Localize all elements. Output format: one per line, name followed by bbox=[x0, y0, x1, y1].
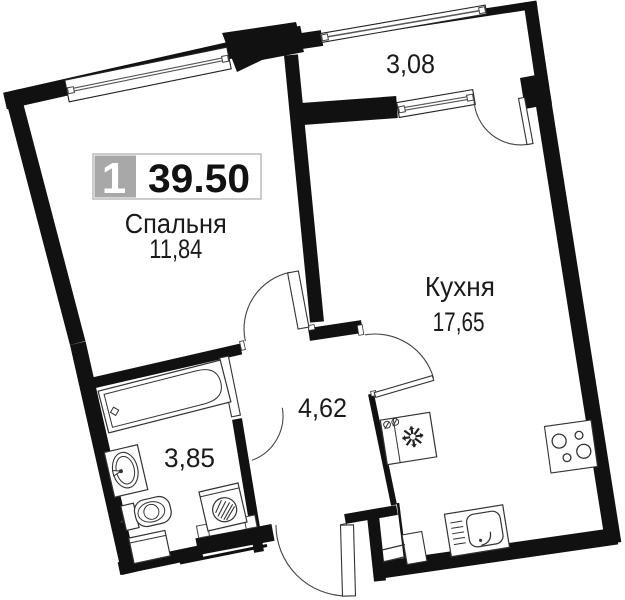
svg-text:3,08: 3,08 bbox=[386, 49, 435, 79]
svg-text:39.50: 39.50 bbox=[148, 157, 250, 201]
svg-text:4,62: 4,62 bbox=[298, 393, 347, 423]
svg-text:1: 1 bbox=[102, 154, 126, 203]
svg-text:11,84: 11,84 bbox=[149, 234, 202, 264]
svg-text:3,85: 3,85 bbox=[164, 443, 215, 473]
svg-text:Кухня: Кухня bbox=[425, 271, 495, 302]
svg-text:17,65: 17,65 bbox=[433, 307, 485, 337]
